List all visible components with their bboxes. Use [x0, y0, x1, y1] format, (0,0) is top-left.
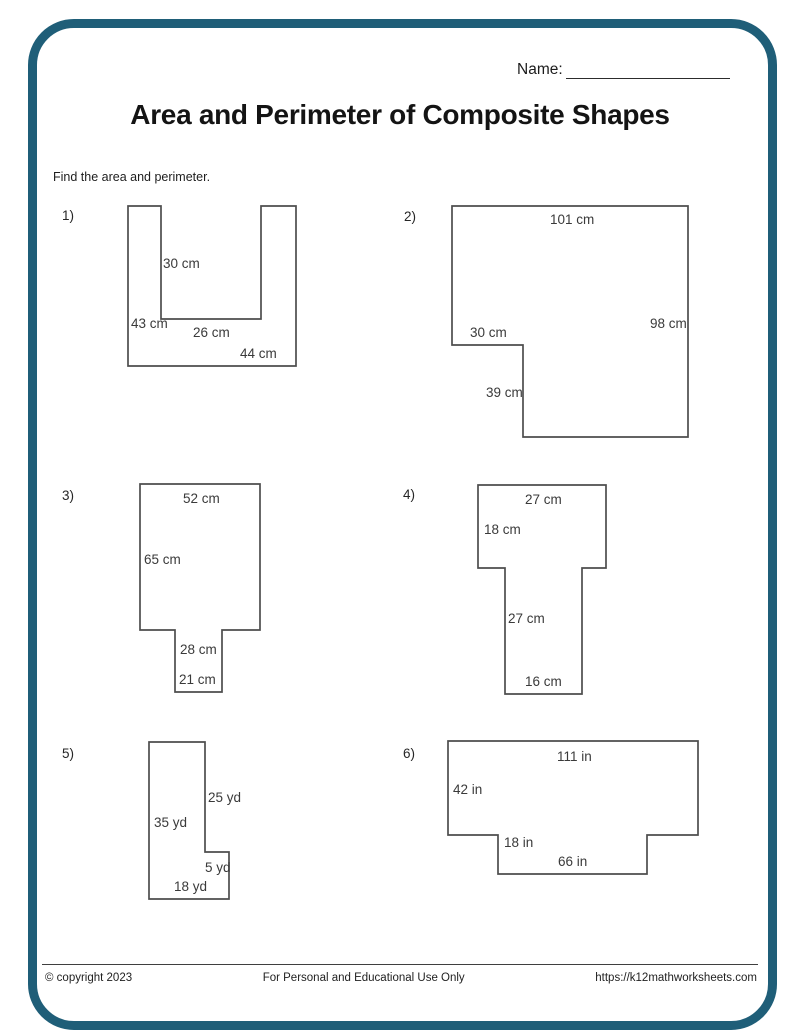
shape-outline-5 [149, 742, 229, 899]
footer-divider [42, 964, 758, 965]
composite-shapes-canvas [0, 0, 800, 1035]
shape-outline-4 [478, 485, 606, 694]
shape-outline-6 [448, 741, 698, 874]
shape-outline-2 [452, 206, 688, 437]
footer: © copyright 2023 For Personal and Educat… [45, 972, 757, 984]
footer-url-link[interactable]: https://k12mathworksheets.com [595, 972, 757, 984]
shape-outline-3 [140, 484, 260, 692]
footer-copyright: © copyright 2023 [45, 972, 132, 984]
footer-usage-text: For Personal and Educational Use Only [263, 972, 465, 984]
shape-outline-1 [128, 206, 296, 366]
